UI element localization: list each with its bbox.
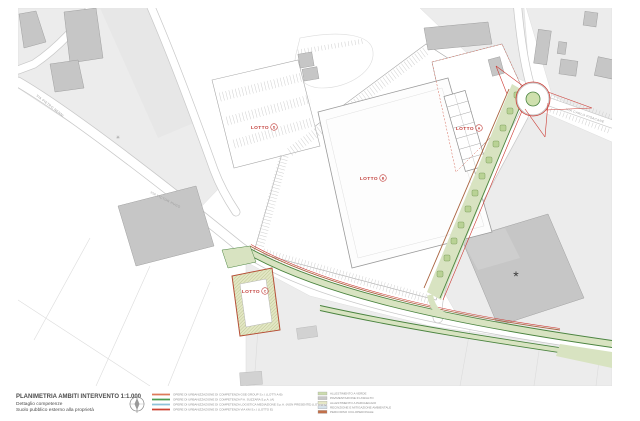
margin-left bbox=[0, 0, 18, 421]
building bbox=[298, 52, 314, 68]
drawing-title: PLANIMETRIA AMBITI INTERVENTO 1:1.000 bbox=[16, 394, 142, 400]
legend-label: OPERE DI URBANIZZAZIONE DI COMPETENZA LO… bbox=[173, 403, 327, 407]
building bbox=[557, 42, 567, 55]
asterisk-marker: * bbox=[513, 268, 519, 284]
drawing-subtitle-2: Suolo pubblico esterno alla proprietà bbox=[16, 407, 94, 413]
legend-label: ALLESTIMENTO A VERDE bbox=[330, 392, 366, 396]
site-plan: * bbox=[0, 0, 640, 421]
legend-label: RECINZIONE E MITIGAZIONE AMBIENTALE bbox=[330, 405, 391, 409]
legend-label: OPERE DI URBANIZZAZIONE DI COMPETENZA GS… bbox=[173, 393, 282, 397]
building bbox=[559, 59, 578, 76]
svg-text:LOTTO: LOTTO bbox=[360, 176, 378, 182]
building bbox=[302, 67, 319, 81]
legend-label: OPERE DI URBANIZZAZIONE DI COMPETENZA VI… bbox=[173, 408, 273, 412]
plan-sheet: * bbox=[0, 0, 640, 421]
svg-text:LOTTO: LOTTO bbox=[242, 289, 260, 295]
legend-label: ALLESTIMENTO A PARCHEGGIO bbox=[330, 401, 377, 405]
building bbox=[50, 60, 84, 92]
legend-swatch-area bbox=[318, 406, 327, 409]
drawing-subtitle-1: Dettaglio competenze bbox=[16, 401, 63, 407]
building bbox=[240, 371, 263, 386]
building bbox=[64, 8, 103, 63]
legend-swatch-area bbox=[318, 410, 327, 413]
lot-c bbox=[232, 268, 280, 336]
legend-label: PAVIMENTAZIONE IN ASFALTO bbox=[330, 396, 374, 400]
margin-top bbox=[0, 0, 640, 8]
svg-text:LOTTO: LOTTO bbox=[456, 126, 474, 132]
lot-c-court bbox=[240, 279, 272, 327]
roundabout-island bbox=[526, 92, 540, 106]
legend-swatch-area bbox=[318, 401, 327, 404]
legend-swatch-area bbox=[318, 397, 327, 400]
legend-label: OPERE DI URBANIZZAZIONE DI COMPETENZA P.… bbox=[173, 398, 274, 402]
svg-text:LOTTO: LOTTO bbox=[251, 125, 269, 131]
legend-label: PERCORSO CICLOPEDONALE bbox=[330, 410, 374, 414]
legend-swatch-area bbox=[318, 392, 327, 395]
survey-marker: ✳ bbox=[116, 135, 120, 141]
margin-right bbox=[612, 0, 640, 421]
building bbox=[583, 11, 598, 27]
